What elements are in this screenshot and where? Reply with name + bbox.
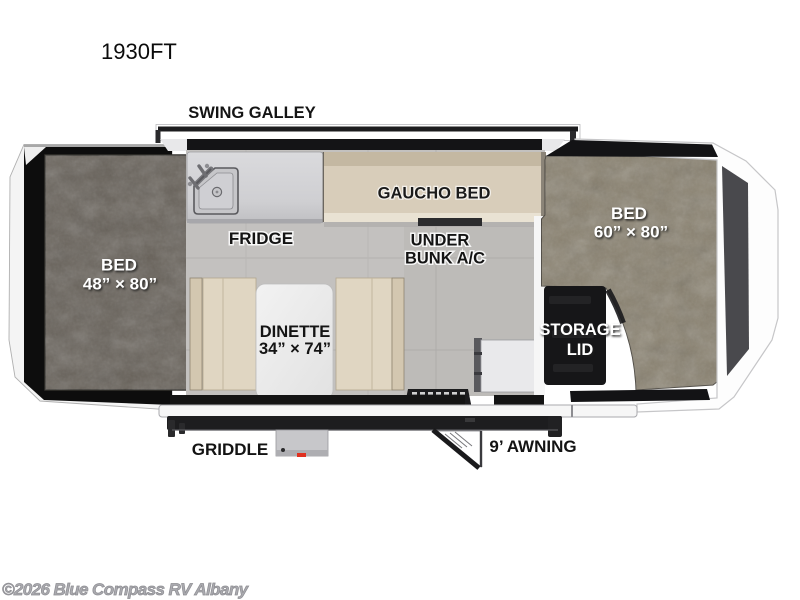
svg-text:LID: LID <box>567 341 594 359</box>
svg-text:1930FT: 1930FT <box>101 39 177 64</box>
svg-text:GAUCHO BED: GAUCHO BED <box>378 185 491 203</box>
svg-text:60” × 80”: 60” × 80” <box>594 223 668 242</box>
svg-text:©2026 Blue Compass RV Albany: ©2026 Blue Compass RV Albany <box>2 580 250 599</box>
svg-text:BUNK A/C: BUNK A/C <box>405 250 485 268</box>
svg-text:9’ AWNING: 9’ AWNING <box>489 437 576 456</box>
svg-text:48” × 80”: 48” × 80” <box>83 275 157 294</box>
svg-text:34” × 74”: 34” × 74” <box>259 340 331 358</box>
svg-text:SWING GALLEY: SWING GALLEY <box>188 104 315 122</box>
svg-text:UNDER: UNDER <box>411 232 470 250</box>
svg-text:STORAGE: STORAGE <box>539 321 620 339</box>
svg-text:GRIDDLE: GRIDDLE <box>192 440 269 459</box>
svg-text:DINETTE: DINETTE <box>260 323 331 341</box>
svg-text:BED: BED <box>611 204 647 223</box>
svg-text:FRIDGE: FRIDGE <box>229 229 293 248</box>
svg-text:BED: BED <box>101 256 137 275</box>
